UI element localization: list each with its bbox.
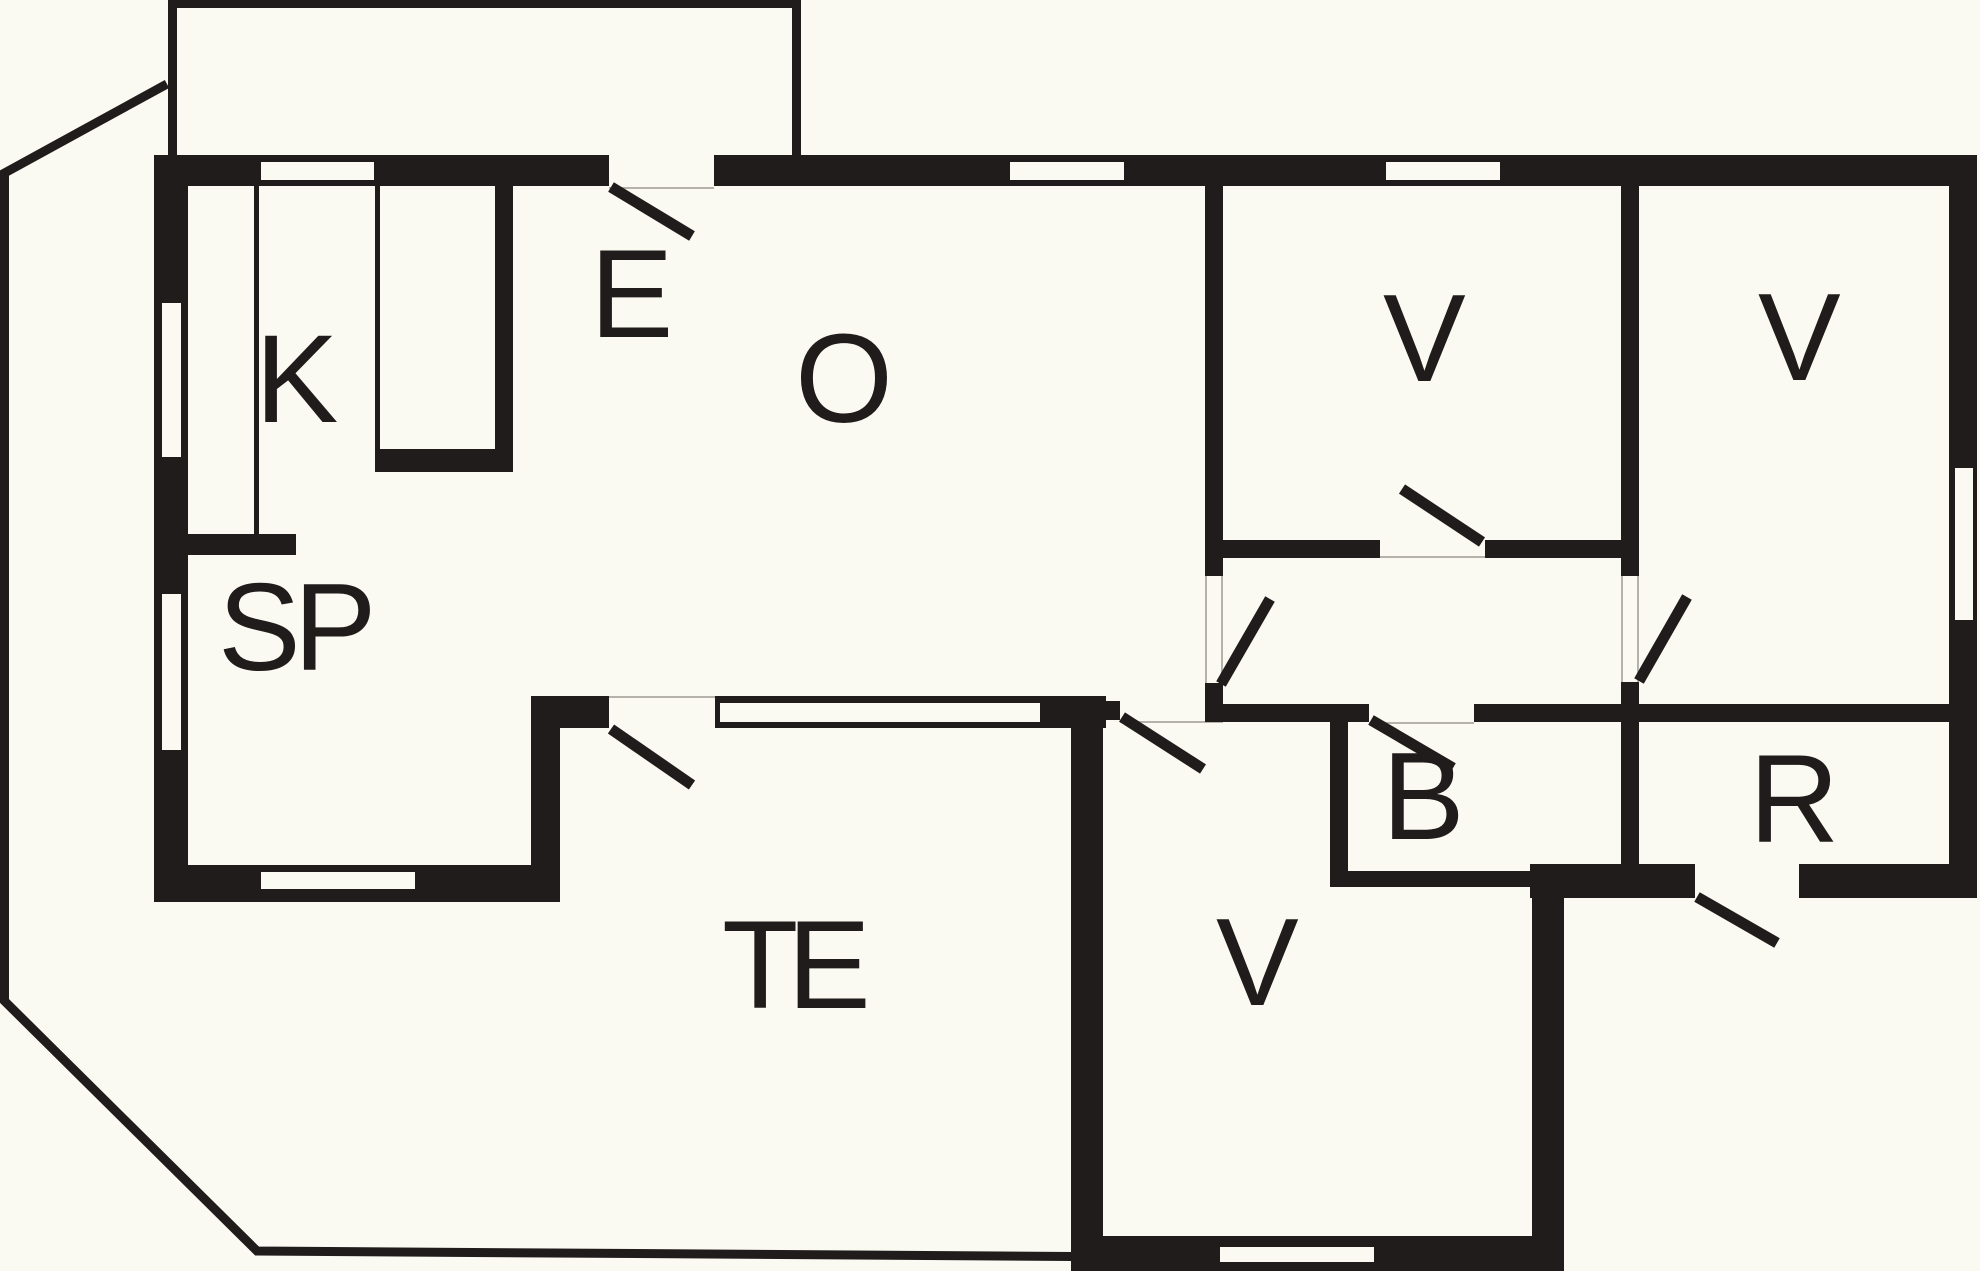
svg-text:V: V bbox=[1216, 894, 1299, 1032]
svg-text:V: V bbox=[1383, 270, 1466, 408]
svg-text:R: R bbox=[1749, 730, 1839, 869]
svg-text:K: K bbox=[255, 310, 338, 449]
svg-text:V: V bbox=[1758, 269, 1841, 407]
svg-text:TE: TE bbox=[722, 896, 865, 1035]
svg-text:B: B bbox=[1382, 728, 1465, 866]
svg-text:SP: SP bbox=[218, 559, 371, 697]
svg-text:E: E bbox=[590, 225, 673, 364]
svg-text:O: O bbox=[795, 308, 893, 449]
